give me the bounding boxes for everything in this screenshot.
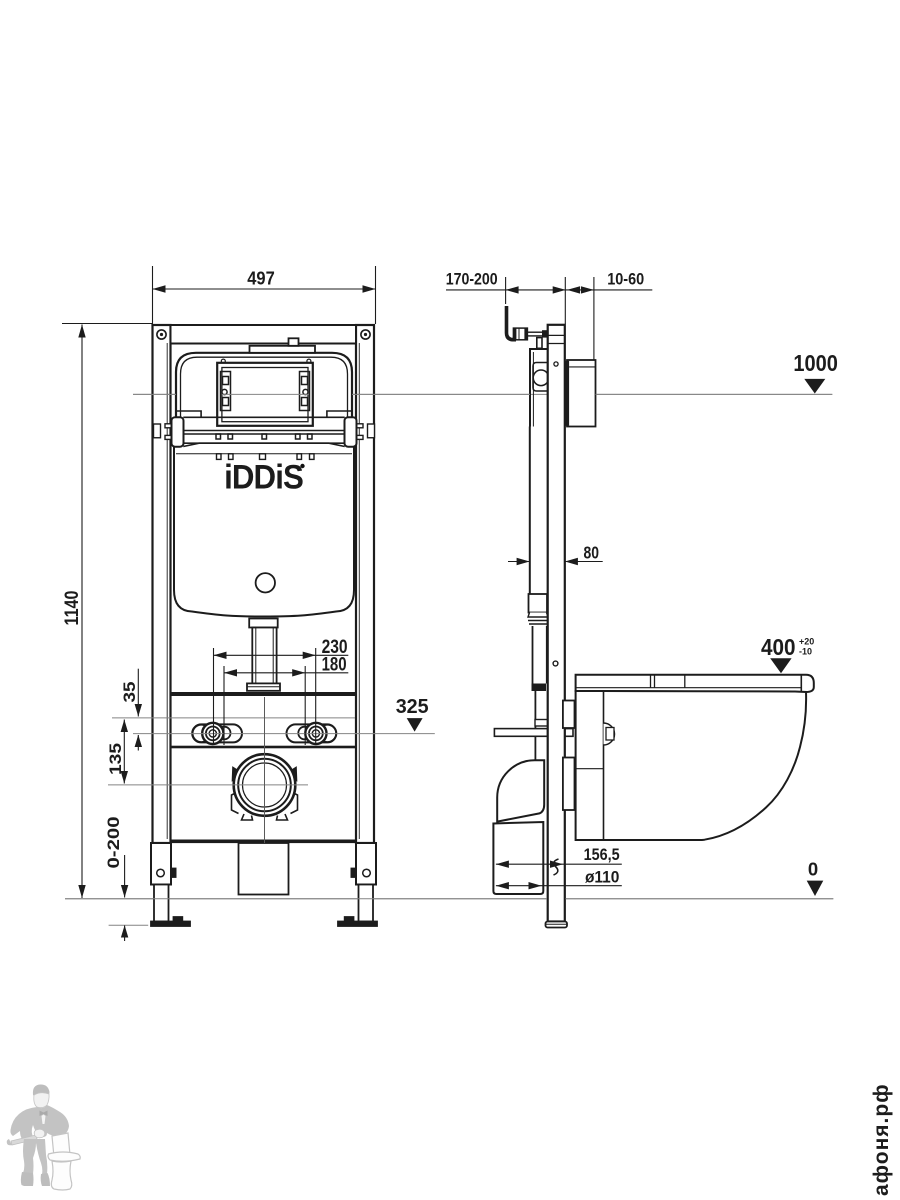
svg-text:80: 80: [584, 543, 600, 563]
svg-text:180: 180: [322, 655, 347, 676]
svg-text:-10: -10: [799, 647, 812, 657]
svg-text:+20: +20: [799, 637, 814, 647]
svg-text:156,5: 156,5: [584, 845, 620, 864]
svg-text:ø110: ø110: [585, 869, 620, 887]
svg-text:10-60: 10-60: [607, 270, 644, 289]
svg-text:170-200: 170-200: [446, 270, 498, 289]
svg-text:0: 0: [808, 859, 818, 880]
svg-text:135: 135: [106, 743, 125, 775]
svg-text:0-200: 0-200: [104, 817, 123, 869]
svg-text:497: 497: [247, 269, 275, 289]
svg-text:1000: 1000: [793, 350, 838, 376]
svg-text:35: 35: [120, 682, 139, 703]
svg-text:400: 400: [761, 634, 796, 660]
svg-text:325: 325: [396, 696, 429, 718]
svg-text:iDDiS: iDDiS: [224, 457, 303, 496]
svg-text:афоня.рф: афоня.рф: [870, 1083, 893, 1196]
svg-text:1140: 1140: [62, 591, 83, 626]
